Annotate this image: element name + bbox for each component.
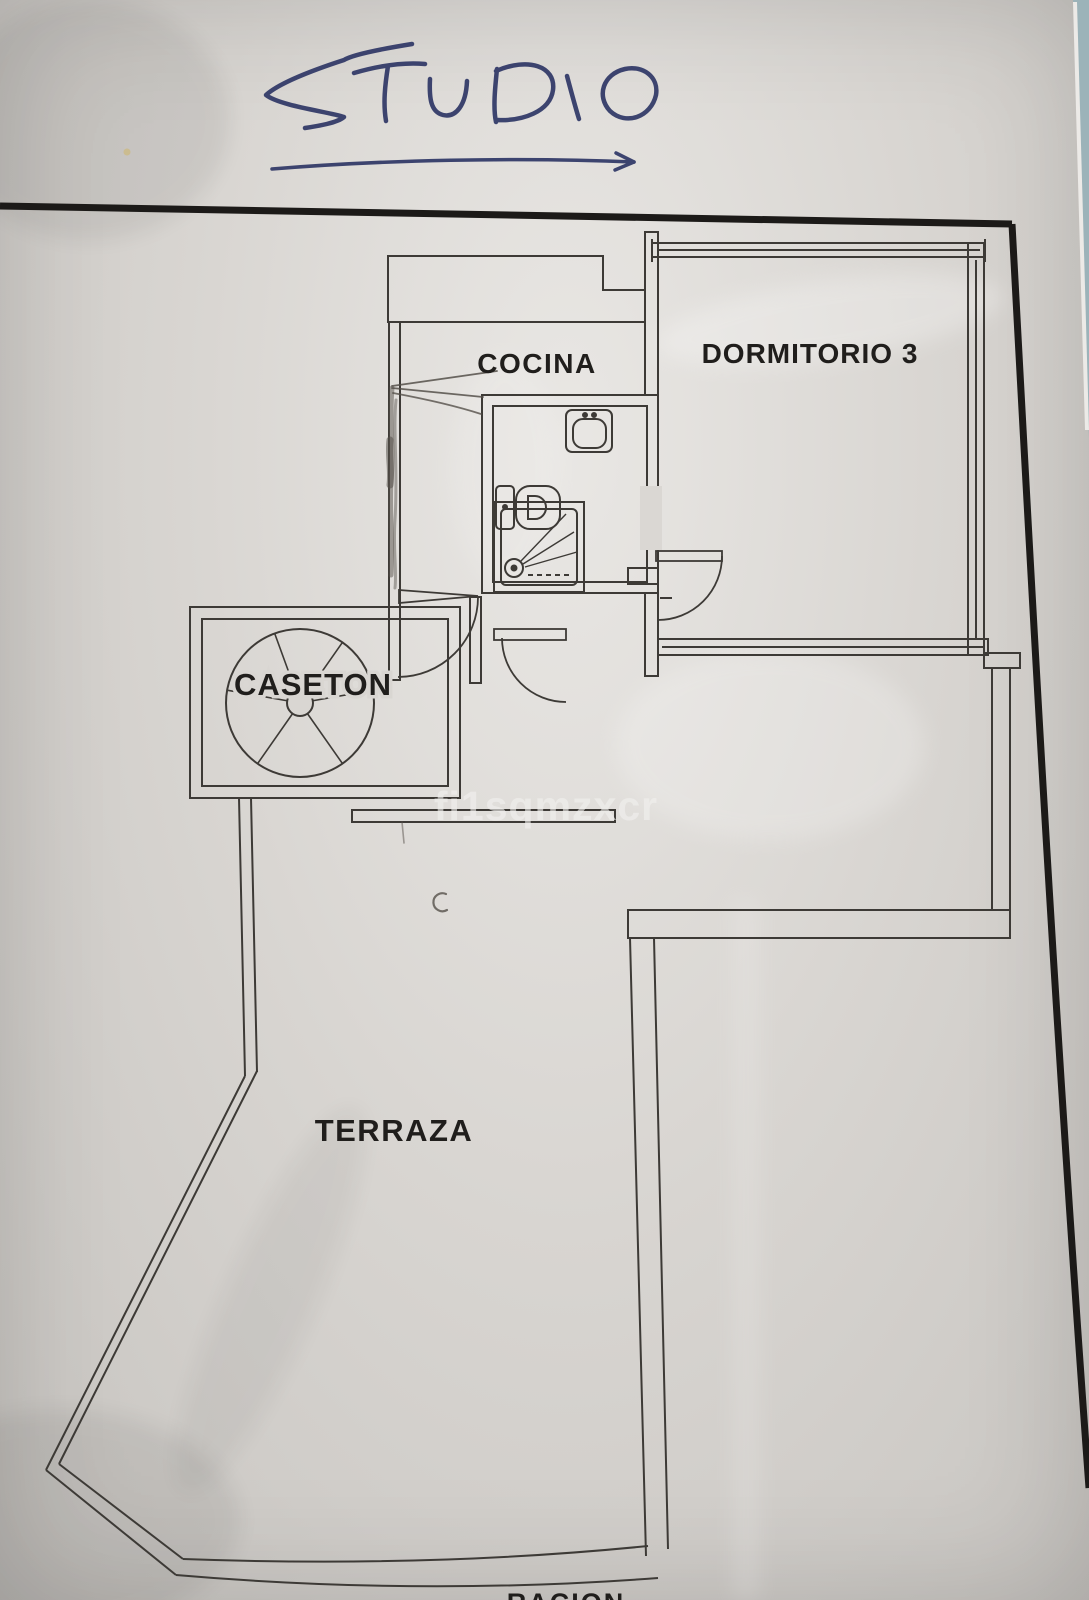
wall-terraza-left (239, 798, 257, 1076)
plan-line (402, 822, 404, 843)
pencil-c-mark (433, 893, 447, 911)
plan-line (1012, 224, 1089, 1488)
room-label-caseton: CASETON (234, 667, 392, 702)
plan-line (512, 566, 517, 571)
wall-cocina-top-band (388, 256, 645, 322)
letter-O (603, 68, 657, 118)
plan-line (592, 413, 596, 417)
title-underline-arrow (272, 153, 634, 170)
plan-line (394, 400, 396, 588)
door-leaf (399, 590, 478, 603)
plan-line (389, 440, 390, 485)
plan-line (615, 650, 925, 840)
sink-icon (566, 410, 612, 452)
room-label-cocina: COCINA (477, 348, 596, 379)
plan-line (733, 900, 759, 1600)
handwritten-title-text: STUDIO (342, 58, 569, 125)
plan-line (573, 419, 606, 448)
bottom-cutoff-label: RACION (507, 1588, 626, 1600)
spiral-staircase-icon (226, 629, 374, 777)
wall-middle-bottom (628, 910, 1010, 938)
letter-I (567, 76, 579, 119)
room-label-dormitorio: DORMITORIO 3 (702, 338, 919, 369)
wall-outer-right (992, 668, 1010, 910)
door-leaf (494, 629, 566, 640)
plan-line (272, 160, 634, 169)
wall-step-right (984, 653, 1020, 668)
wall-terraza-right (630, 938, 668, 1556)
wall-hall-stub (470, 597, 481, 683)
plan-line (143, 1090, 396, 1510)
floor-plan-photo: COCINA DORMITORIO 3 CASETON TERRAZA fi1s… (0, 0, 1089, 1600)
wall-caseton-outer (190, 607, 460, 798)
wall-caseton-inner (202, 619, 448, 786)
wall-dormitorio-left-lower (645, 593, 658, 676)
door-swing-arc (502, 638, 566, 702)
paper-stain (124, 149, 131, 156)
door-swing-arc (658, 556, 722, 620)
watermark: fi1sqmzxcr (434, 783, 658, 829)
floor-plan-canvas: COCINA DORMITORIO 3 CASETON TERRAZA fi1s… (0, 0, 1089, 1600)
door-leaf (656, 551, 722, 561)
room-label-terraza: TERRAZA (315, 1113, 474, 1148)
door-opening (640, 486, 662, 550)
plan-line (583, 413, 587, 417)
wall-terraza-bottom (176, 1546, 658, 1586)
door-swing-arc (398, 597, 478, 677)
